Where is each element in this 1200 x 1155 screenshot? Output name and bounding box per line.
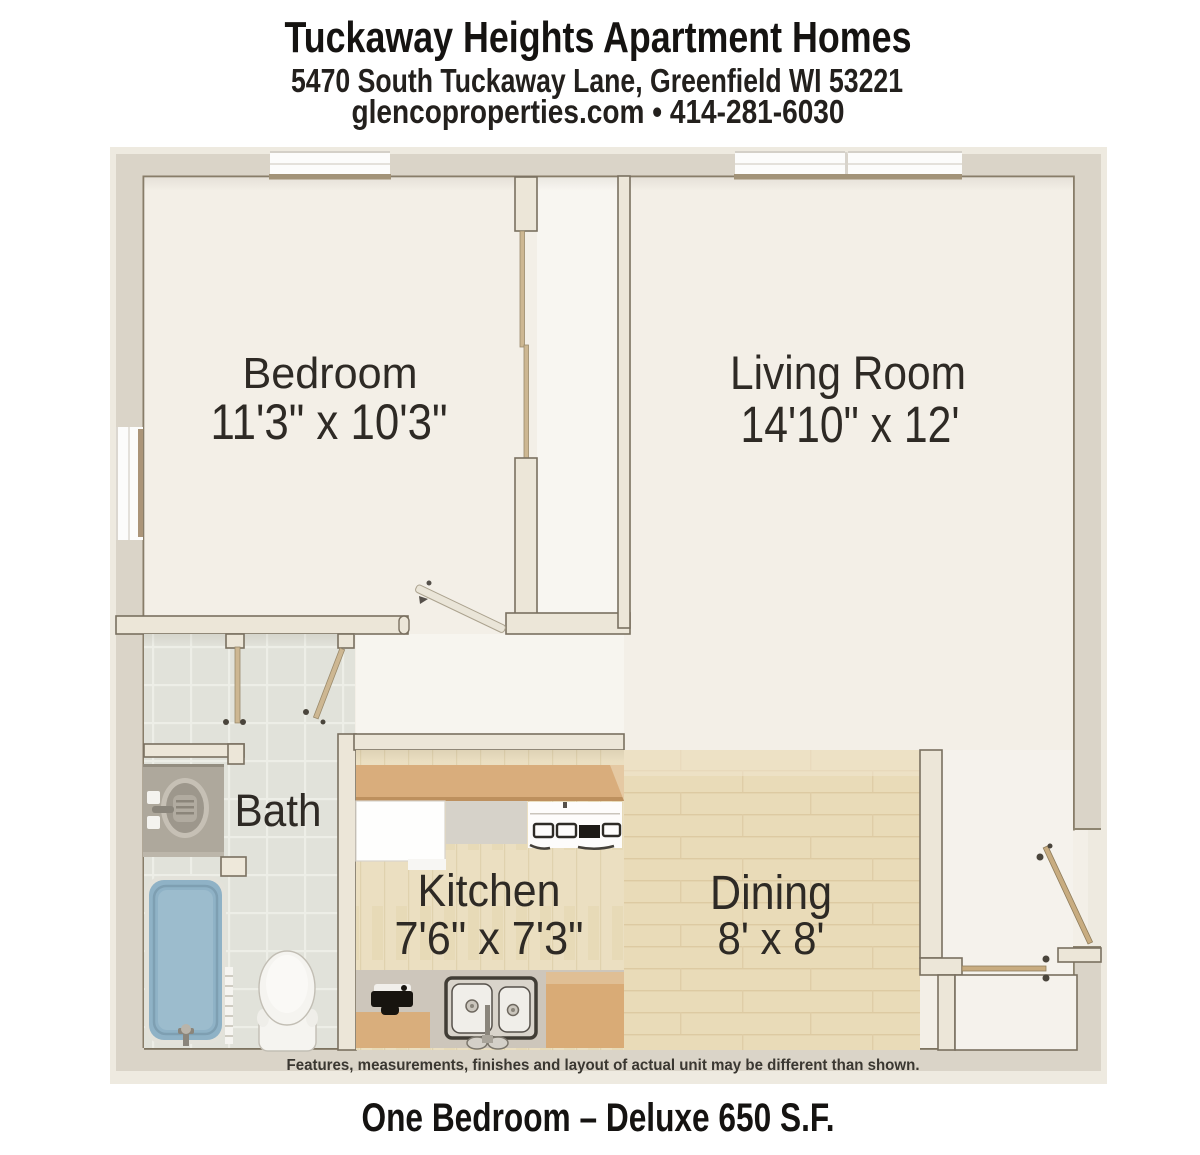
svg-text:7'6" x 7'3": 7'6" x 7'3"	[395, 912, 584, 964]
svg-text:Bath: Bath	[235, 785, 322, 836]
svg-text:Features, measurements, finish: Features, measurements, finishes and lay…	[287, 1057, 920, 1074]
svg-text:11'3" x 10'3": 11'3" x 10'3"	[211, 394, 448, 450]
svg-text:8' x 8': 8' x 8'	[718, 913, 825, 964]
svg-text:14'10" x 12': 14'10" x 12'	[741, 396, 960, 453]
svg-text:Living Room: Living Room	[730, 346, 966, 399]
svg-text:One Bedroom – Deluxe 650 S.F.: One Bedroom – Deluxe 650 S.F.	[362, 1096, 835, 1140]
svg-text:Kitchen: Kitchen	[418, 865, 561, 916]
svg-text:Bedroom: Bedroom	[243, 349, 418, 398]
svg-text:glencoproperties.com • 414-281: glencoproperties.com • 414-281-6030	[352, 93, 845, 130]
svg-text:Tuckaway Heights Apartment Hom: Tuckaway Heights Apartment Homes	[285, 13, 912, 62]
